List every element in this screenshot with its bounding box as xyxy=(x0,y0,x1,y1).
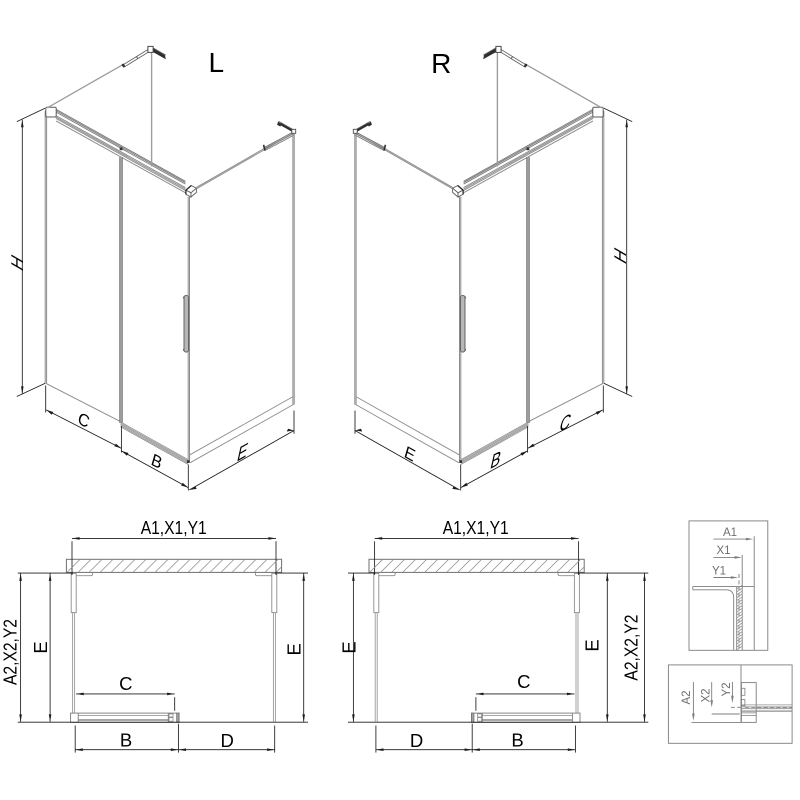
svg-text:B: B xyxy=(120,730,132,751)
svg-text:X1: X1 xyxy=(716,545,730,557)
svg-text:D: D xyxy=(410,730,423,751)
svg-text:A2,X2,Y2: A2,X2,Y2 xyxy=(622,615,642,681)
svg-text:E: E xyxy=(581,639,602,651)
svg-text:A1,X1,Y1: A1,X1,Y1 xyxy=(141,518,207,538)
svg-text:X2: X2 xyxy=(701,688,713,702)
svg-text:B: B xyxy=(511,730,523,751)
svg-text:Y1: Y1 xyxy=(712,565,726,577)
svg-text:Y2: Y2 xyxy=(721,682,733,696)
svg-text:C: C xyxy=(517,671,530,692)
svg-text:R: R xyxy=(431,48,451,79)
svg-text:E: E xyxy=(30,641,51,653)
svg-text:A1,X1,Y1: A1,X1,Y1 xyxy=(443,518,509,538)
svg-text:D: D xyxy=(221,730,234,751)
svg-text:A2: A2 xyxy=(681,690,693,704)
svg-text:L: L xyxy=(209,47,225,78)
svg-text:E: E xyxy=(338,641,359,653)
svg-text:A1: A1 xyxy=(723,527,737,539)
svg-text:C: C xyxy=(119,673,132,694)
svg-text:E: E xyxy=(283,643,304,655)
svg-text:A2,X2,Y2: A2,X2,Y2 xyxy=(1,619,21,685)
